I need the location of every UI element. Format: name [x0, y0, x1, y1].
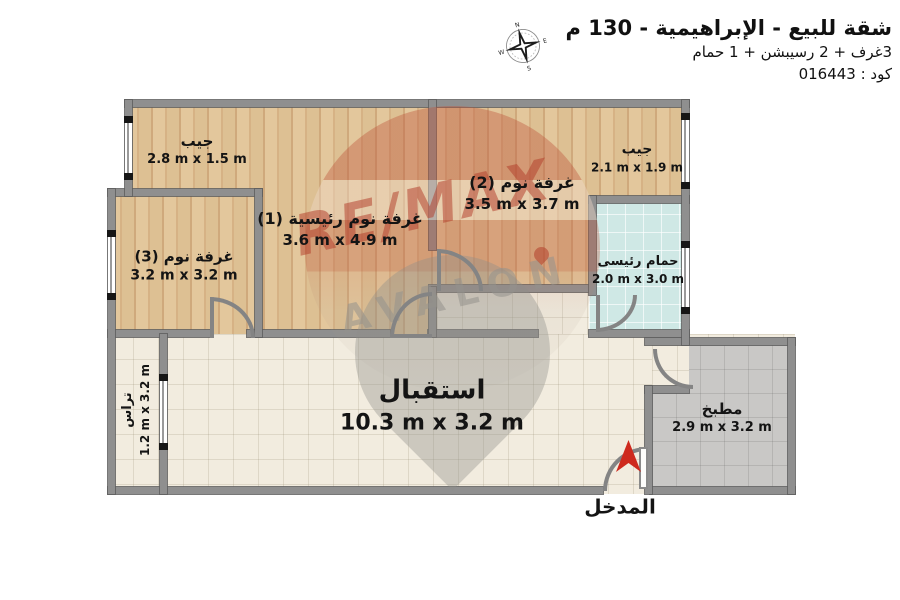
compass-s: S [526, 65, 532, 73]
room-label-jib-tr: جيب 2.1 m x 1.9 m [591, 140, 683, 175]
room-name: المدخل [584, 494, 656, 521]
window-jib-tl [125, 118, 132, 178]
room-dims: 2.0 m x 3.0 m [592, 271, 684, 287]
room-dims: 3.5 m x 3.7 m [465, 194, 580, 214]
room-label-main-bathroom: حمام رئيسى 2.0 m x 3.0 m [592, 253, 684, 287]
room-label-master-bedroom: غرفة نوم رئيسية (1) 3.6 m x 4.9 m [257, 208, 423, 250]
wall-master-bedroom2-upper [429, 100, 436, 250]
room-name: تراس [119, 364, 137, 456]
room-dims: 1.2 m x 3.2 m [137, 364, 153, 456]
compass-w: W [498, 49, 506, 57]
wall-bottom-right [650, 487, 795, 494]
window-terrace [160, 376, 167, 448]
room-label-reception: استقبال 10.3 m x 3.2 m [340, 374, 524, 439]
room-label-bedroom-3: غرفة نوم (3) 3.2 m x 3.2 m [130, 246, 237, 285]
page-title: شقة للبيع - الإبراهيمية - 130 م [566, 16, 892, 40]
room-name: حمام رئيسى [592, 253, 684, 271]
window-jib-tr [682, 115, 689, 187]
room-name: جيب [147, 131, 247, 151]
room-name: استقبال [340, 374, 524, 409]
wall-mid-seg2 [247, 330, 390, 337]
compass-icon: N E S W [491, 14, 555, 78]
compass-e: E [542, 37, 548, 45]
floor-plan-page: شقة للبيع - الإبراهيمية - 130 م 3غرف + 2… [0, 0, 900, 600]
room-name: غرفة نوم (3) [130, 246, 237, 266]
compass-n: N [514, 21, 520, 29]
window-bedroom3 [108, 232, 115, 298]
wall-bottom-left [108, 487, 603, 494]
door-leaf-entrance [639, 447, 648, 489]
page-subtitle: 3غرف + 2 رسيبشن + 1 حمام [566, 43, 892, 61]
room-dims: 2.8 m x 1.5 m [147, 151, 247, 169]
room-name: غرفة نوم رئيسية (1) [257, 208, 423, 230]
wall-top [125, 100, 689, 107]
room-label-jib-tl: جيب 2.8 m x 1.5 m [147, 131, 247, 169]
wall-right-lower [788, 338, 795, 494]
room-name: جيب [591, 140, 683, 159]
room-label-kitchen: مطبخ 2.9 m x 3.2 m [672, 399, 772, 437]
room-dims: 3.6 m x 4.9 m [257, 230, 423, 250]
wall-mid-seg3 [428, 330, 538, 337]
room-dims: 3.2 m x 3.2 m [130, 267, 237, 286]
room-name: مطبخ [672, 399, 772, 419]
listing-code: كود : 016443 [566, 65, 892, 83]
wall-kitchen-top [645, 338, 795, 345]
room-label-bedroom-2: غرفة نوم (2) 3.5 m x 3.7 m [465, 172, 580, 214]
room-dims: 10.3 m x 3.2 m [340, 409, 524, 439]
room-dims: 2.1 m x 1.9 m [591, 159, 683, 175]
room-name: غرفة نوم (2) [465, 172, 580, 194]
entrance-label: المدخل [584, 494, 656, 521]
wall-bathroom-top [589, 196, 689, 203]
header: شقة للبيع - الإبراهيمية - 130 م 3غرف + 2… [566, 16, 892, 83]
room-dims: 2.9 m x 3.2 m [672, 419, 772, 437]
wall-mid-seg1 [108, 330, 210, 337]
room-label-terrace: تراس 1.2 m x 3.2 m [119, 364, 153, 456]
